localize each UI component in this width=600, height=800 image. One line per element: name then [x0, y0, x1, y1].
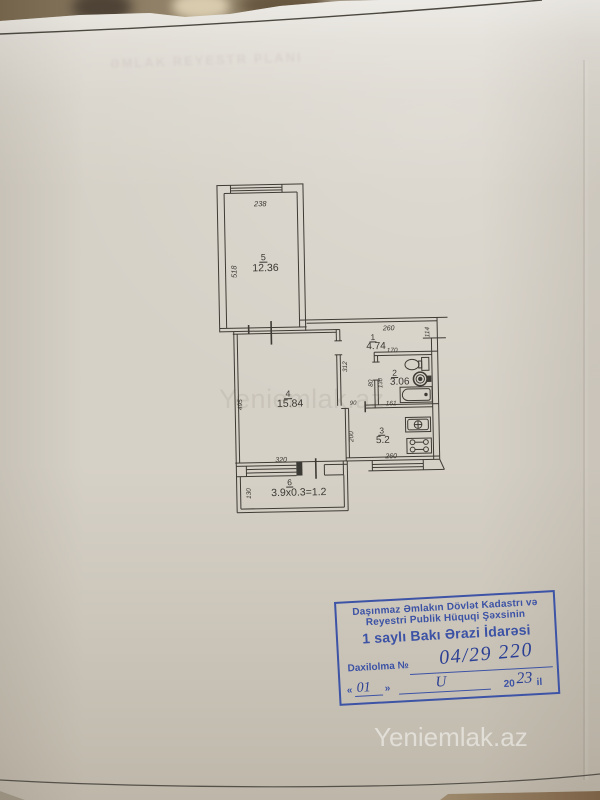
- svg-text:3.9x0.3=1.2: 3.9x0.3=1.2: [271, 486, 327, 499]
- svg-text:238: 238: [253, 199, 268, 208]
- svg-text:4.74: 4.74: [366, 341, 386, 352]
- svg-text:260: 260: [384, 453, 397, 460]
- svg-text:260: 260: [382, 325, 395, 332]
- svg-text:170: 170: [387, 347, 398, 354]
- svg-text:200: 200: [348, 431, 355, 443]
- svg-text:320: 320: [275, 457, 287, 464]
- svg-text:312: 312: [342, 361, 349, 372]
- svg-text:12.36: 12.36: [252, 262, 279, 275]
- svg-text:130: 130: [246, 488, 253, 499]
- svg-text:5: 5: [261, 252, 266, 262]
- svg-text:3.06: 3.06: [390, 376, 410, 387]
- svg-text:5.2: 5.2: [376, 435, 391, 446]
- svg-text:518: 518: [229, 265, 238, 279]
- svg-text:114: 114: [424, 326, 431, 337]
- svg-text:161: 161: [386, 400, 397, 407]
